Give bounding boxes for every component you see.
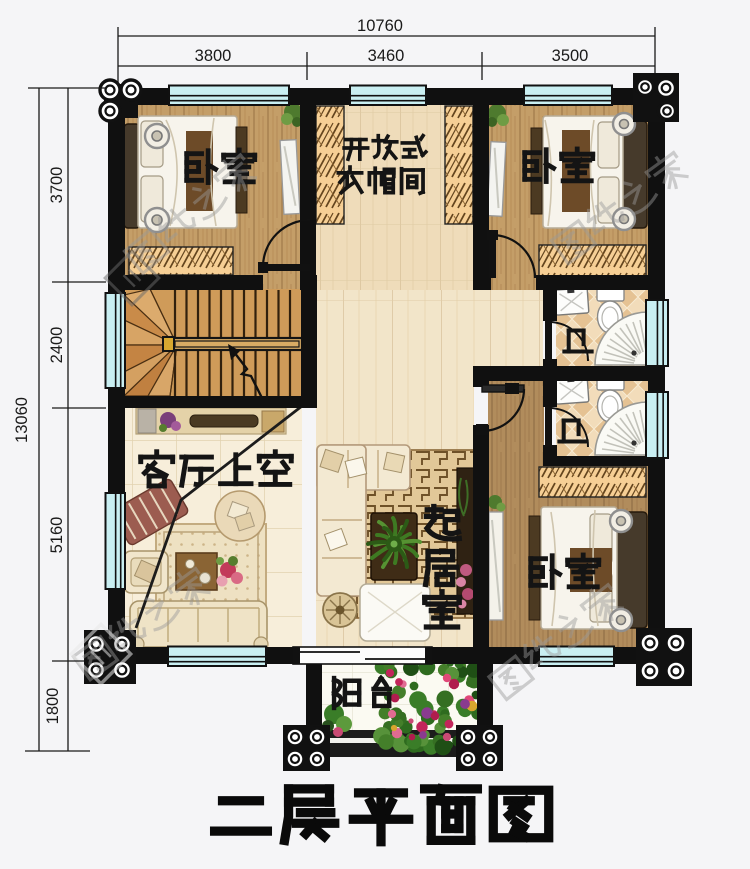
svg-text:3800: 3800 — [195, 47, 232, 65]
svg-text:3700: 3700 — [48, 167, 66, 204]
svg-text:1800: 1800 — [44, 688, 62, 725]
svg-text:3460: 3460 — [368, 47, 405, 65]
svg-text:3500: 3500 — [552, 47, 589, 65]
svg-text:5160: 5160 — [48, 517, 66, 554]
svg-text:10760: 10760 — [357, 17, 403, 35]
svg-text:13060: 13060 — [13, 397, 31, 443]
svg-text:2400: 2400 — [48, 327, 66, 364]
